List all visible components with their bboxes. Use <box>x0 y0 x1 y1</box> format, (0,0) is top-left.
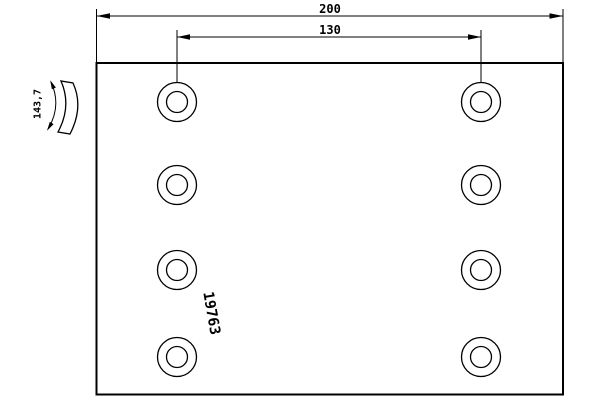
arrowhead-right-icon <box>468 34 481 40</box>
arrowhead-left-icon <box>97 13 111 19</box>
technical-drawing-canvas: 200 130 143,7 19763 <box>0 0 600 400</box>
brake-lining-technical-drawing: 200 130 143,7 19763 <box>0 0 600 400</box>
curvature-symbol: 143,7 <box>33 80 78 134</box>
arrowhead-bottom-icon <box>47 122 54 131</box>
arc-radius-dimension-label: 143,7 <box>33 89 44 119</box>
lining-section-crescent-icon <box>58 81 78 134</box>
overall-length-dimension-label: 200 <box>319 2 341 16</box>
arrowhead-top-icon <box>50 80 56 89</box>
arrowhead-right-icon <box>550 13 564 19</box>
arrowhead-left-icon <box>177 34 190 40</box>
hole-spacing-dimension-label: 130 <box>319 23 341 37</box>
lining-plate-outline <box>97 63 564 395</box>
